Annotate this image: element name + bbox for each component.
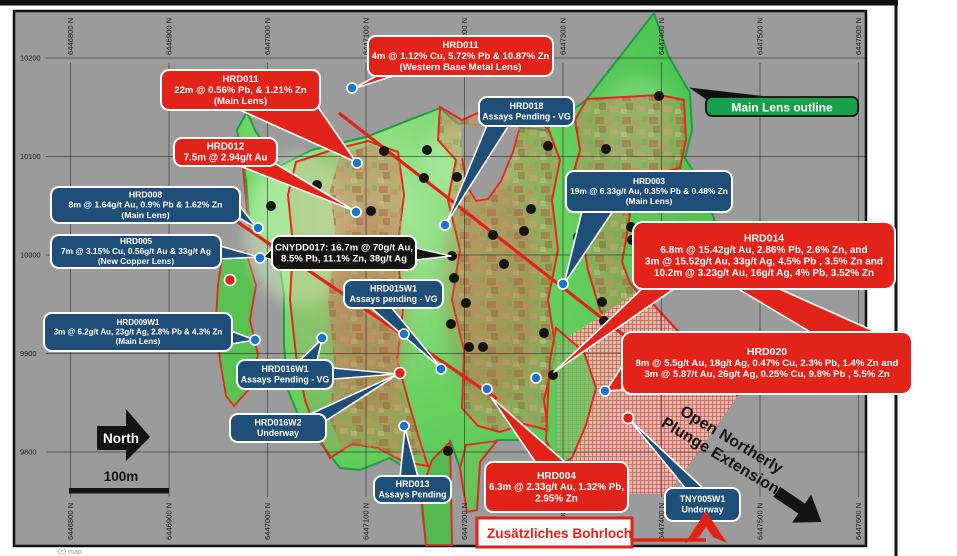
svg-text:6446900 N: 6446900 N — [165, 18, 174, 55]
svg-text:100m: 100m — [104, 469, 139, 484]
svg-text:HRD018: HRD018 — [510, 101, 544, 111]
svg-text:6447300 N: 6447300 N — [559, 18, 568, 55]
svg-text:(New Copper Lens): (New Copper Lens) — [98, 256, 175, 266]
svg-text:8m @ 1.64g/t Au, 0.9% Pb & 1.6: 8m @ 1.64g/t Au, 0.9% Pb & 1.62% Zn — [69, 200, 223, 210]
svg-text:6447500 N: 6447500 N — [756, 503, 765, 540]
svg-text:3m @ 6.2g/t Au, 23g/t Ag, 2.8%: 3m @ 6.2g/t Au, 23g/t Ag, 2.8% Pb & 4.3%… — [54, 327, 223, 336]
svg-text:10000: 10000 — [20, 251, 41, 260]
svg-text:6446900 N: 6446900 N — [165, 503, 174, 540]
svg-text:HRD016W2: HRD016W2 — [255, 418, 302, 428]
svg-text:6446800 N: 6446800 N — [66, 503, 75, 540]
svg-text:HRD013: HRD013 — [396, 479, 430, 489]
svg-text:(Main Lens): (Main Lens) — [121, 210, 169, 220]
svg-text:19m @ 6.33g/t Au, 0.35% Pb & 0: 19m @ 6.33g/t Au, 0.35% Pb & 0.48% Zn — [570, 186, 728, 196]
svg-text:Assays Pending - VG: Assays Pending - VG — [241, 374, 330, 384]
svg-text:7m @ 3.15% Cu, 0.56g/t Au & 33: 7m @ 3.15% Cu, 0.56g/t Au & 33g/t Ag — [61, 246, 211, 256]
svg-text:North: North — [103, 431, 139, 446]
svg-text:10100: 10100 — [20, 152, 41, 161]
svg-text:6447600 N: 6447600 N — [854, 503, 863, 540]
svg-text:10200: 10200 — [20, 54, 41, 63]
svg-text:HRD016W1: HRD016W1 — [262, 364, 309, 374]
svg-text:HRD003: HRD003 — [633, 176, 665, 186]
svg-text:2.95% Zn: 2.95% Zn — [535, 493, 577, 504]
svg-text:HRD020: HRD020 — [747, 346, 787, 358]
svg-text:9900: 9900 — [20, 349, 36, 358]
svg-text:8m @ 5.5g/t Au, 18g/t Ag, 0.47: 8m @ 5.5g/t Au, 18g/t Ag, 0.47% Cu, 2.3%… — [636, 358, 899, 369]
svg-text:HRD015W1: HRD015W1 — [370, 284, 417, 294]
svg-text:6447000 N: 6447000 N — [263, 18, 272, 55]
svg-text:HRD011: HRD011 — [222, 74, 259, 85]
svg-text:7.5m @ 2.94g/t Au: 7.5m @ 2.94g/t Au — [184, 153, 268, 164]
svg-text:(Main Lens): (Main Lens) — [116, 337, 161, 346]
svg-text:3m @ 15.52g/t Au, 33g/t Ag, 4.: 3m @ 15.52g/t Au, 33g/t Ag, 4.5% Pb , 3.… — [645, 256, 883, 267]
svg-text:Zusätzliches Bohrloch: Zusätzliches Bohrloch — [487, 526, 632, 541]
svg-text:4m @ 1.12% Cu, 5.72% Pb & 10.8: 4m @ 1.12% Cu, 5.72% Pb & 10.87% Zn — [372, 51, 550, 62]
svg-text:Underway: Underway — [681, 504, 723, 514]
svg-text:6447600 N: 6447600 N — [854, 18, 863, 55]
svg-text:8.5% Pb, 11.1% Zn, 38g/t Ag: 8.5% Pb, 11.1% Zn, 38g/t Ag — [281, 253, 407, 264]
svg-text:9800: 9800 — [20, 448, 36, 457]
svg-text:6447200 N: 6447200 N — [460, 503, 469, 540]
svg-text:Main Lens outline: Main Lens outline — [731, 101, 833, 115]
svg-text:HRD011: HRD011 — [442, 40, 479, 51]
svg-text:3m @ 5.87/t Au, 26g/t Ag, 0.25: 3m @ 5.87/t Au, 26g/t Ag, 0.25% Cu, 9.8%… — [644, 369, 890, 380]
svg-text:TNY005W1: TNY005W1 — [680, 494, 726, 504]
svg-text:6447000 N: 6447000 N — [263, 503, 272, 540]
svg-text:HRD004: HRD004 — [537, 471, 576, 482]
svg-text:(Main Lens): (Main Lens) — [626, 196, 673, 206]
svg-text:HRD009W1: HRD009W1 — [117, 318, 160, 327]
svg-text:6.8m @ 15.42g/t Au, 2.86% Pb,: 6.8m @ 15.42g/t Au, 2.86% Pb, 2.6% Zn, a… — [660, 245, 867, 256]
svg-text:HRD005: HRD005 — [120, 236, 152, 246]
svg-text:Assays Pending: Assays Pending — [379, 489, 447, 499]
svg-text:22m @ 0.56% Pb, & 1.21% Zn: 22m @ 0.56% Pb, & 1.21% Zn — [174, 85, 307, 96]
svg-text:(Western Base Metal Lens): (Western Base Metal Lens) — [400, 62, 522, 73]
svg-text:Assays pending - VG: Assays pending - VG — [350, 294, 438, 304]
svg-text:HRD008: HRD008 — [129, 189, 162, 199]
svg-text:Underway: Underway — [257, 428, 299, 438]
svg-text:6447100 N: 6447100 N — [362, 503, 371, 540]
svg-text:6447500 N: 6447500 N — [756, 18, 765, 55]
svg-text:6446800 N: 6446800 N — [66, 18, 75, 55]
svg-text:10.2m @ 3.23g/t Au, 16g/t Ag,: 10.2m @ 3.23g/t Au, 16g/t Ag, 4% Pb, 3.5… — [654, 268, 874, 279]
svg-text:(c) map: (c) map — [58, 549, 82, 556]
svg-text:6447400 N: 6447400 N — [657, 18, 666, 55]
svg-text:Assays Pending - VG: Assays Pending - VG — [482, 111, 571, 121]
svg-text:CNYDD017: 16.7m @ 70g/t Au,: CNYDD017: 16.7m @ 70g/t Au, — [275, 242, 413, 253]
svg-text:HRD014: HRD014 — [744, 232, 784, 244]
svg-text:HRD012: HRD012 — [207, 141, 245, 152]
svg-text:(Main Lens): (Main Lens) — [214, 96, 267, 107]
svg-text:6.3m @ 2.33g/t Au, 1.32% Pb,: 6.3m @ 2.33g/t Au, 1.32% Pb, — [489, 482, 624, 493]
